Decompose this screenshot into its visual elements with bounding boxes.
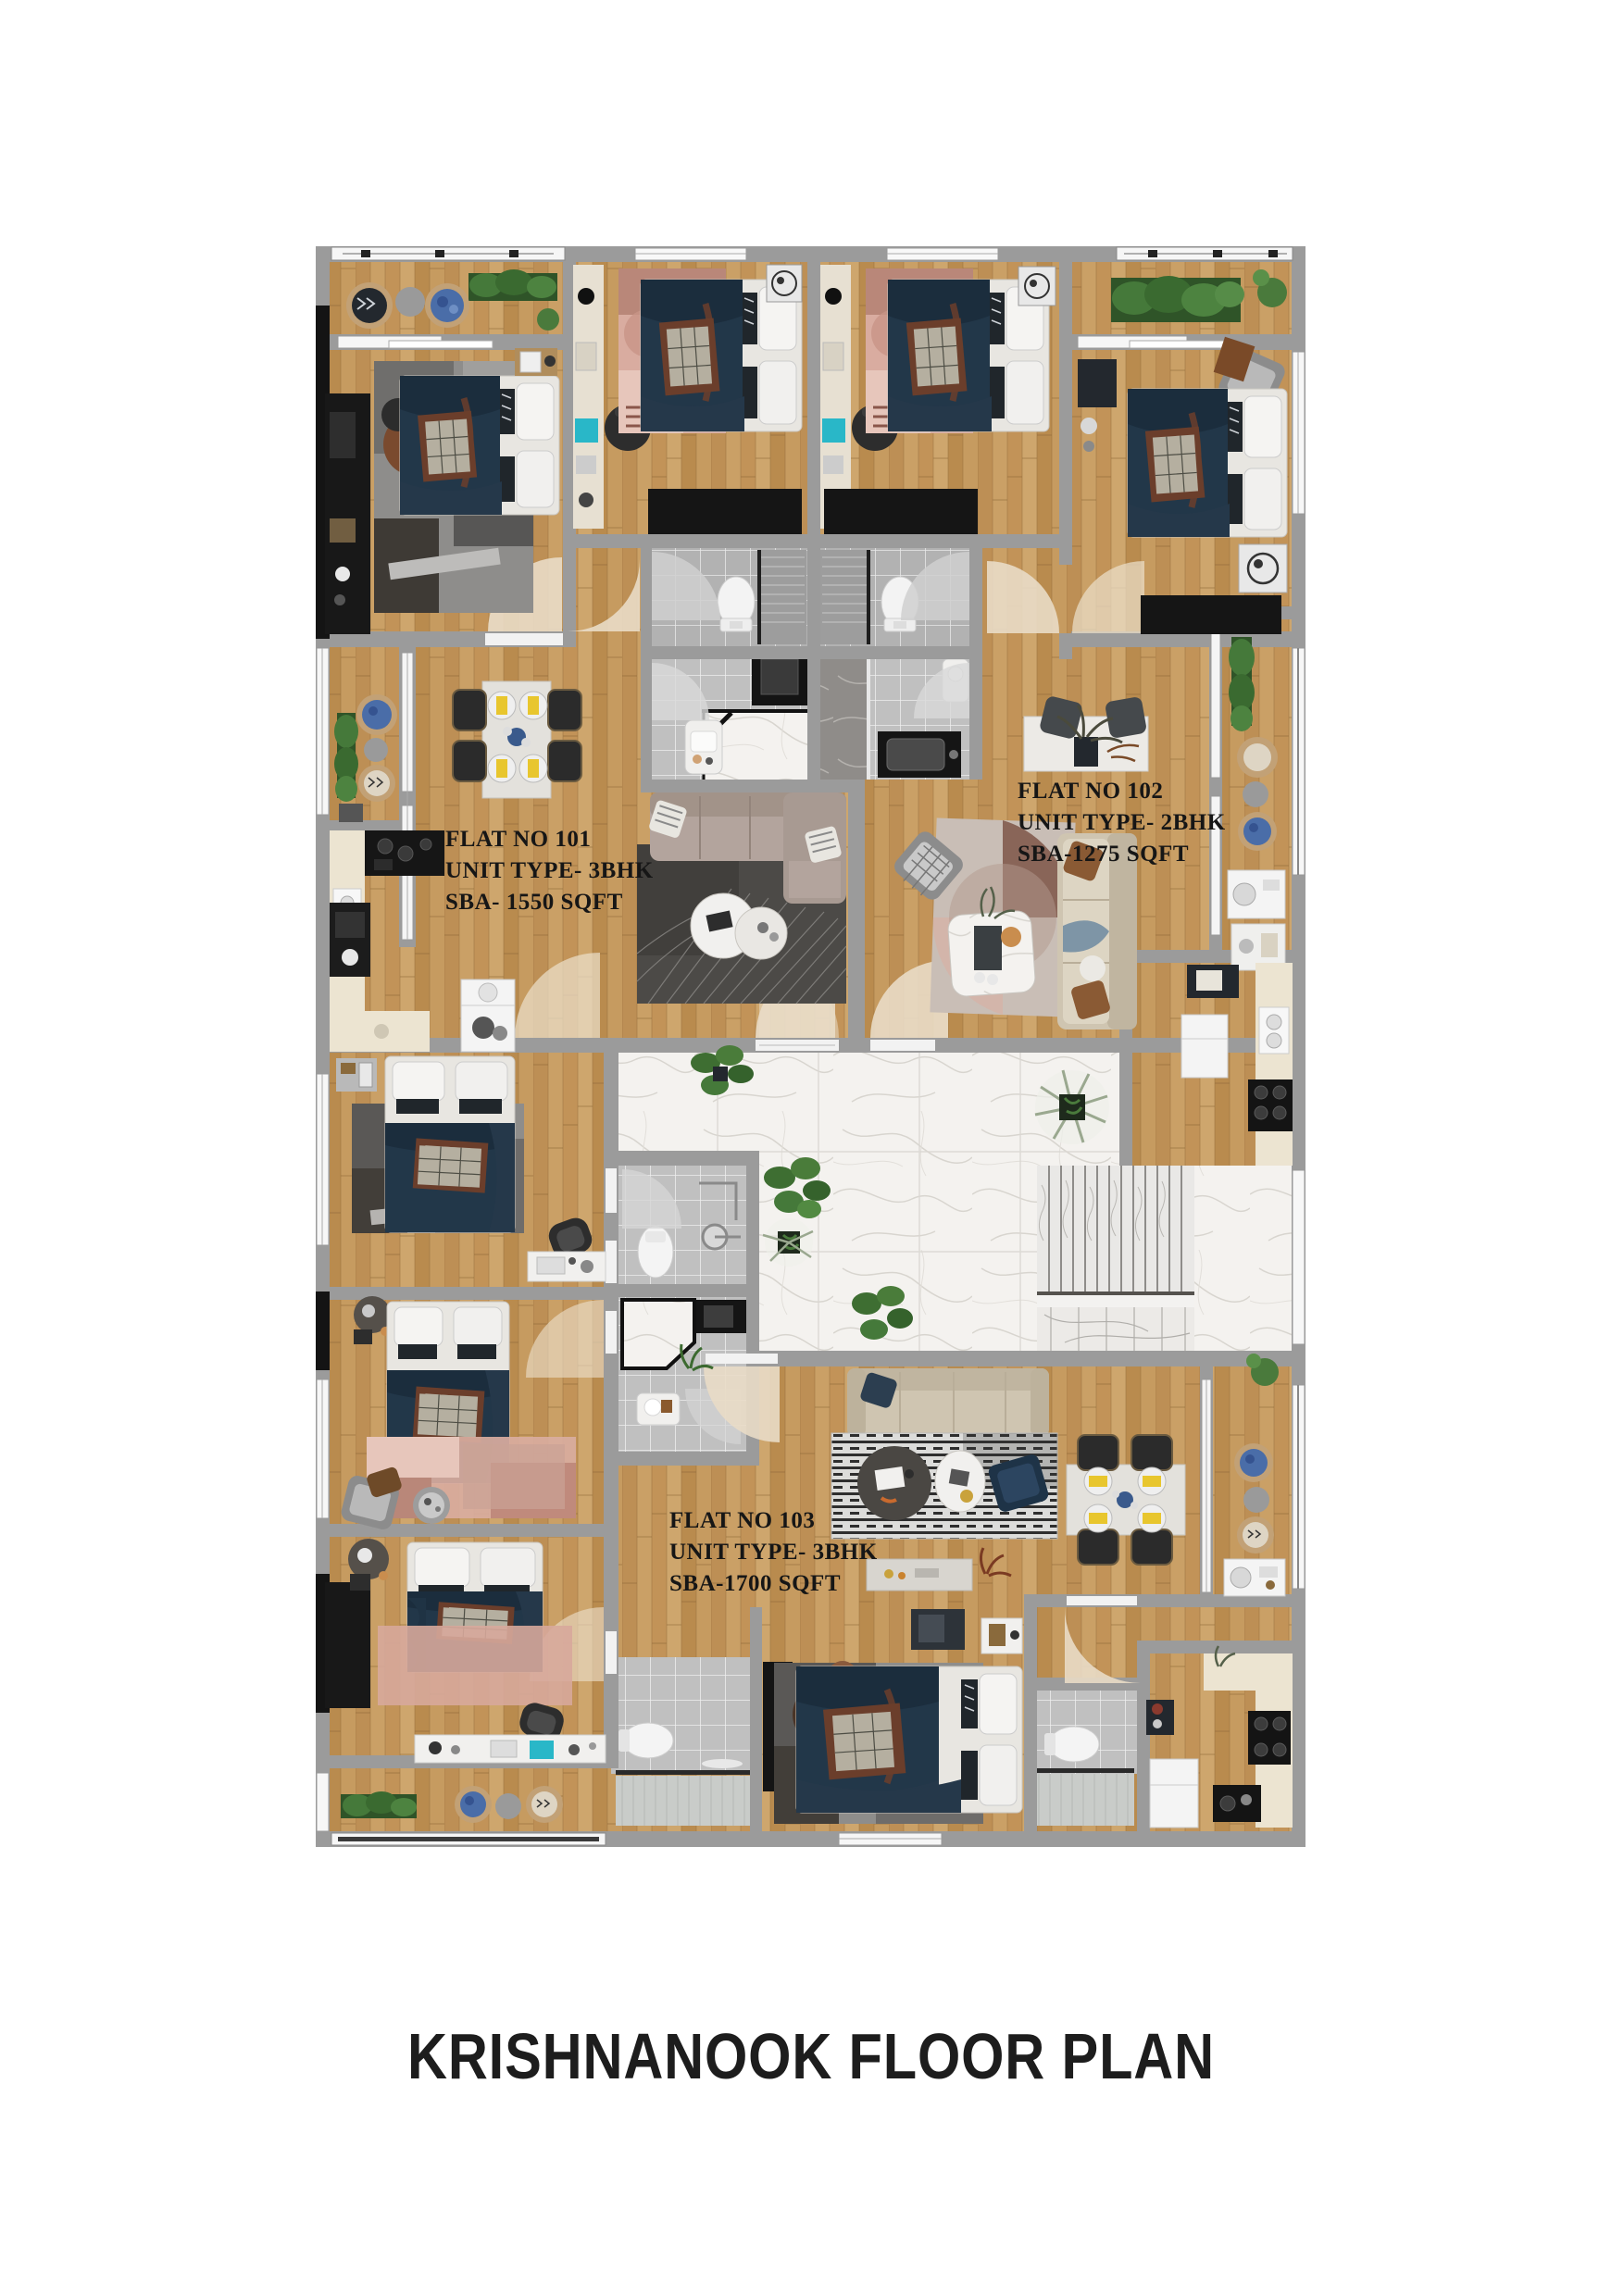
svg-text:UNIT TYPE- 3BHK: UNIT TYPE- 3BHK [669, 1540, 878, 1565]
svg-text:SBA-1700 SQFT: SBA-1700 SQFT [669, 1571, 841, 1596]
svg-text:FLAT NO 102: FLAT NO 102 [1018, 779, 1163, 804]
svg-text:SBA-1275 SQFT: SBA-1275 SQFT [1018, 842, 1189, 867]
svg-text:SBA- 1550 SQFT: SBA- 1550 SQFT [445, 890, 623, 915]
svg-text:FLAT NO 101: FLAT NO 101 [445, 827, 591, 852]
svg-text:UNIT TYPE- 2BHK: UNIT TYPE- 2BHK [1018, 810, 1226, 835]
svg-text:KRISHNANOOK FLOOR PLAN: KRISHNANOOK FLOOR PLAN [407, 2020, 1215, 2092]
svg-text:FLAT NO 103: FLAT NO 103 [669, 1508, 815, 1533]
svg-text:UNIT TYPE- 3BHK: UNIT TYPE- 3BHK [445, 858, 654, 883]
